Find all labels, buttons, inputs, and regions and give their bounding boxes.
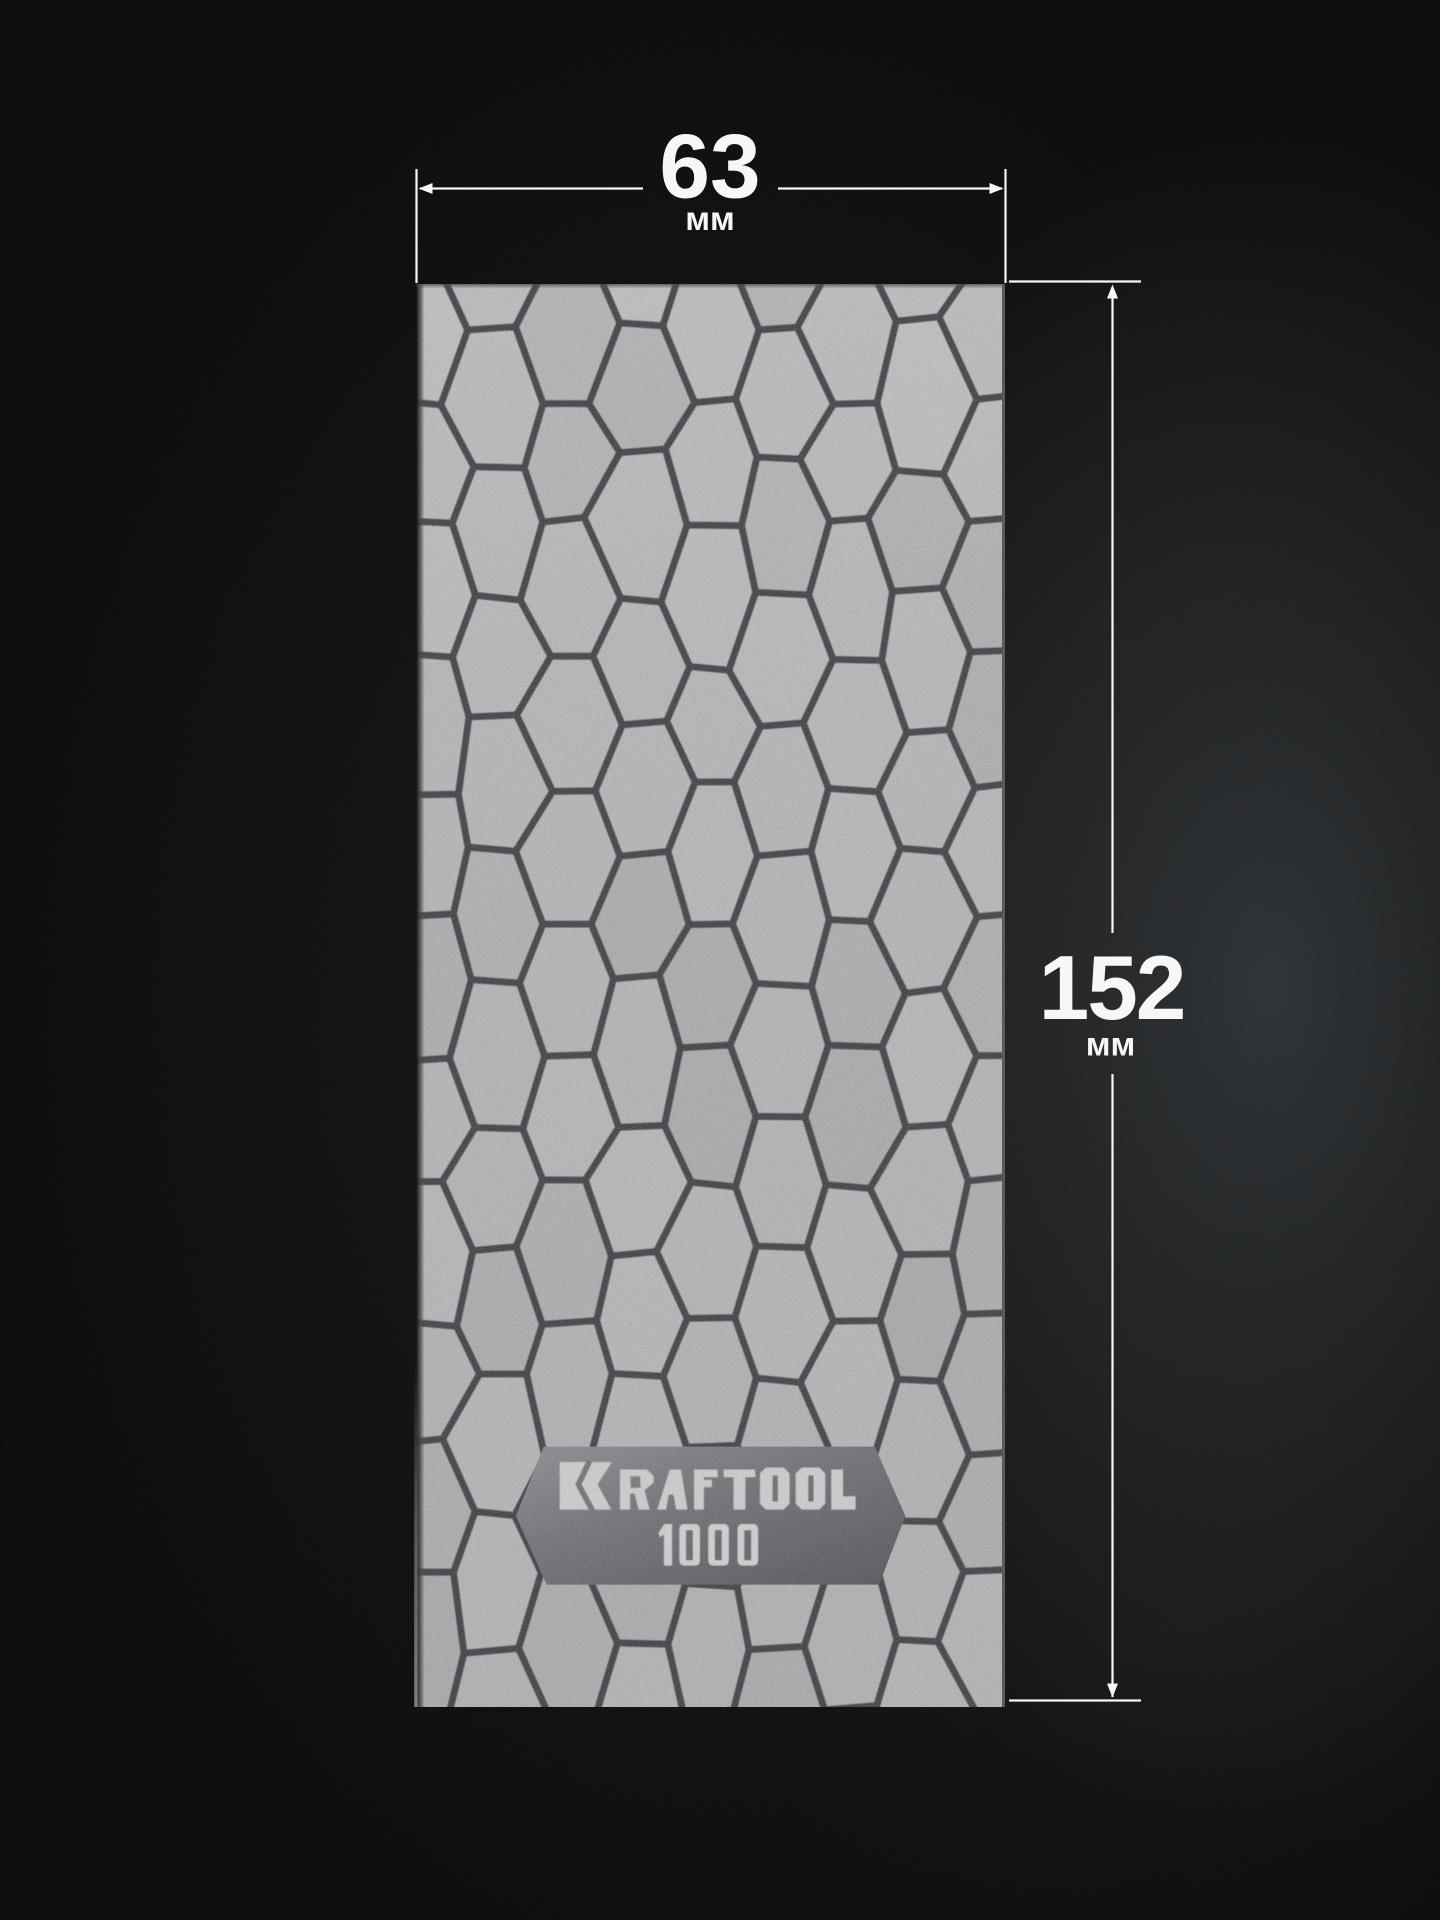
- svg-text:152: 152: [1039, 938, 1185, 1039]
- svg-text:мм: мм: [1086, 1027, 1136, 1064]
- svg-text:мм: мм: [685, 201, 735, 238]
